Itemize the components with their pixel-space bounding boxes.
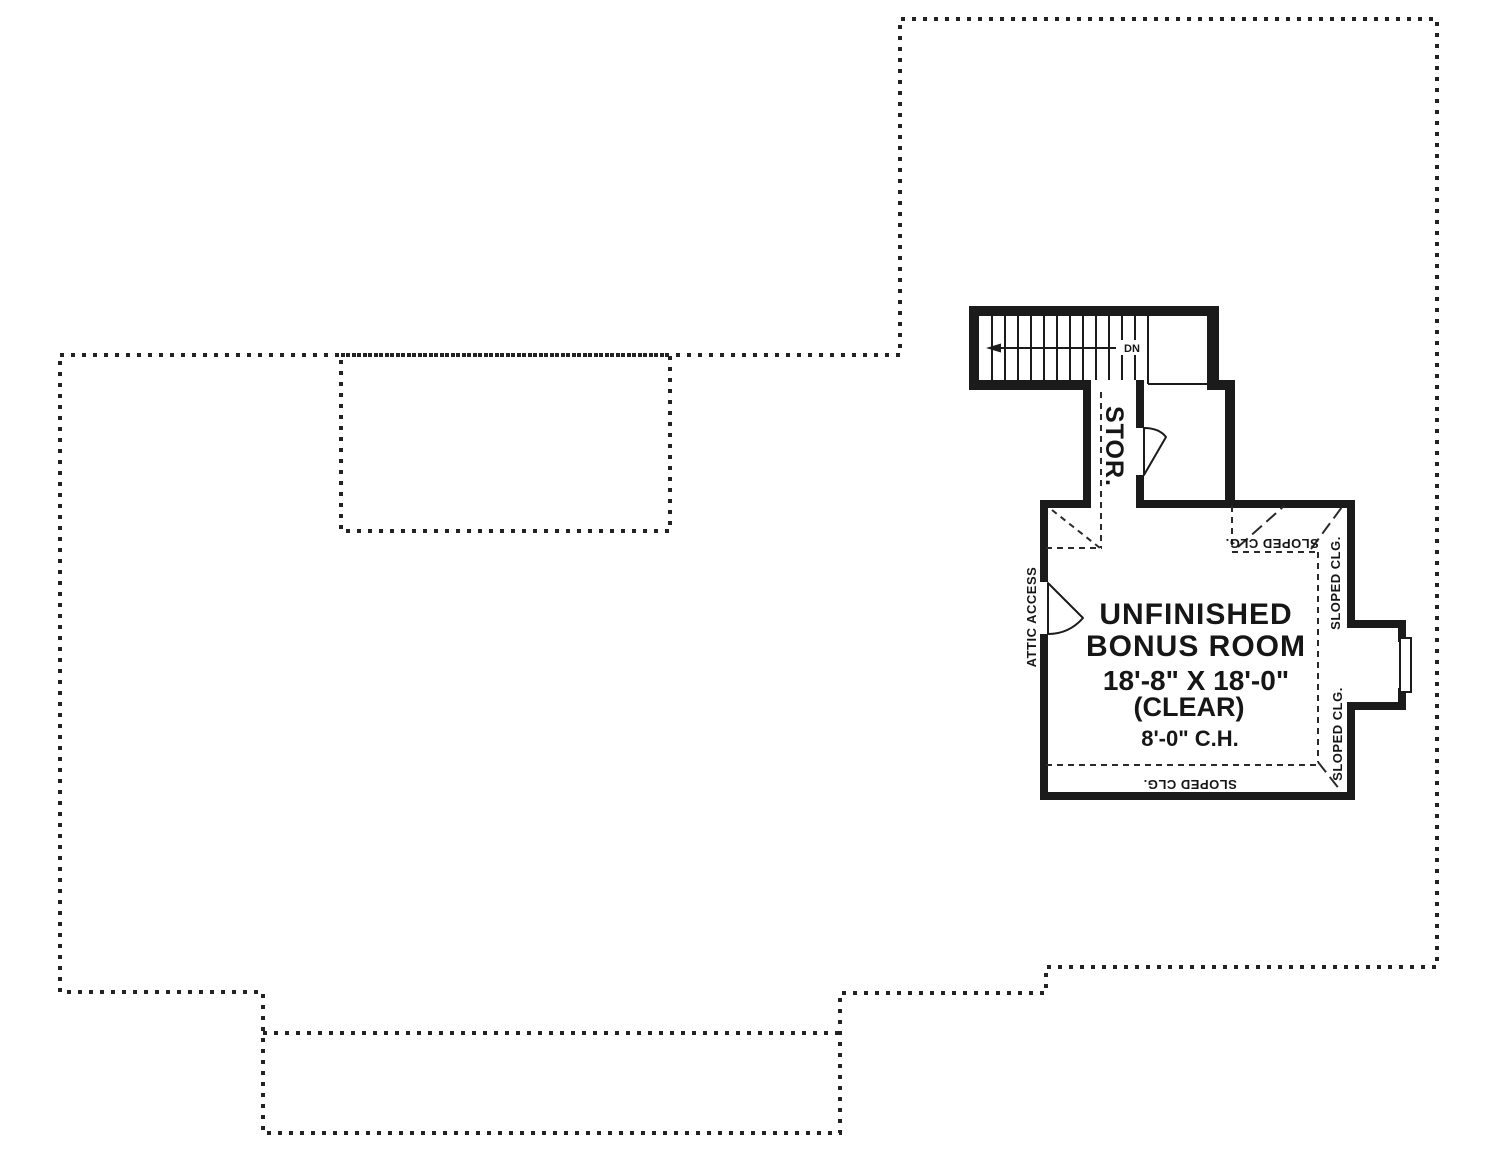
room-name-line1: UNFINISHED <box>1099 598 1292 631</box>
floor-plan-drawing: DN STOR. ATTIC ACCESS <box>0 0 1500 1160</box>
storage-label: STOR. <box>1100 406 1128 487</box>
stairs: DN <box>969 306 1219 390</box>
room-ceiling-height: 8'-0" C.H. <box>1141 726 1239 751</box>
sloped-ceiling-label-bottom: SLOPED CLG. <box>1143 777 1237 792</box>
main-roof-outline <box>60 19 1437 1133</box>
floor-plan-page: DN STOR. ATTIC ACCESS <box>0 0 1500 1160</box>
down-label: DN <box>1124 343 1140 355</box>
attic-access-door <box>1048 583 1083 634</box>
storage-corridor: STOR. <box>1083 380 1235 548</box>
sloped-ceiling-label-top-right: SLOPED CLG. <box>1225 536 1319 551</box>
down-arrow-icon <box>986 344 1001 353</box>
attic-access-label: ATTIC ACCESS <box>1024 567 1039 668</box>
room-title-block: UNFINISHED BONUS ROOM 18'-8" X 18'-0" (C… <box>1086 598 1306 751</box>
storage-door <box>1144 428 1166 475</box>
roof-outline-group <box>60 19 1437 1133</box>
dormer <box>1347 620 1411 710</box>
lower-roof-outline <box>341 355 670 531</box>
attic-access: ATTIC ACCESS <box>1024 567 1083 668</box>
sloped-ceiling-label-right-upper: SLOPED CLG. <box>1328 536 1343 630</box>
room-name-line2: BONUS ROOM <box>1086 630 1306 663</box>
stair-direction: DN <box>986 340 1146 355</box>
room-clear-note: (CLEAR) <box>1134 692 1245 722</box>
sloped-ceiling-label-right-lower: SLOPED CLG. <box>1330 687 1345 781</box>
dormer-window <box>1400 638 1411 692</box>
sloped-line-top-left-diagonal <box>1052 510 1100 548</box>
